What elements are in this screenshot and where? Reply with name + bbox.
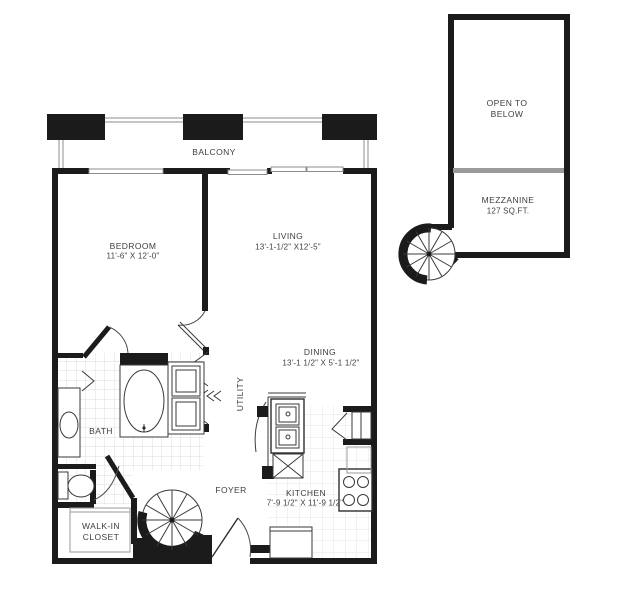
mezzanine-structure	[403, 14, 570, 280]
hall-door-arc	[178, 311, 205, 325]
stove	[339, 469, 372, 511]
mezzanine-label: MEZZANINE	[482, 195, 535, 205]
toilet	[68, 475, 94, 497]
bedroom-label: BEDROOM	[110, 241, 157, 251]
open-to-below-label: BELOW	[491, 109, 524, 119]
bedroom-angled-wall	[84, 327, 109, 357]
living-window	[271, 167, 306, 172]
bedroom-window	[89, 169, 163, 174]
tub-drain	[142, 426, 145, 429]
bath-label: BATH	[89, 426, 113, 436]
balcony-structure	[47, 114, 377, 170]
balcony-label: BALCONY	[192, 147, 235, 157]
utility-label: UTILITY	[235, 377, 245, 411]
open-to-below-label: OPEN TO	[487, 98, 528, 108]
mezzanine-divider	[453, 168, 564, 173]
balcony-column	[183, 114, 243, 140]
bedroom-dimensions: 11'-6" X 12'-0"	[107, 252, 160, 261]
bathtub	[124, 370, 164, 432]
base-cabinet	[270, 527, 312, 558]
living-window	[307, 167, 343, 172]
walk-in-closet-label: WALK-IN	[82, 521, 120, 531]
closet-foyer-wall	[131, 498, 137, 544]
foyer-label: FOYER	[215, 485, 246, 495]
floor-plan: BALCONY BEDROOM 11'-6" X 12'-0" LIVING 1…	[0, 0, 639, 596]
dining-label: DINING	[304, 347, 336, 357]
balcony-column	[322, 114, 377, 140]
bedroom-living-divider	[202, 174, 208, 311]
toilet-tank	[58, 472, 68, 499]
bedroom-door-arc	[109, 327, 128, 353]
entry-door-arc	[238, 518, 251, 557]
dining-dimensions: 13'-1 1/2" X 5'-1 1/2"	[282, 359, 359, 368]
entry-door	[212, 518, 238, 557]
mezzanine-area: 127 SQ.FT.	[487, 207, 529, 216]
living-label: LIVING	[273, 231, 303, 241]
living-dimensions: 13'-1-1/2" X12'-5"	[255, 243, 321, 252]
living-window	[228, 170, 267, 175]
balcony-column	[47, 114, 105, 140]
kitchen-label: KITCHEN	[286, 488, 326, 498]
vanity-sink	[60, 412, 78, 438]
entry-jamb	[250, 545, 272, 553]
walk-in-closet-label: CLOSET	[83, 532, 119, 542]
kitchen-dimensions: 7'-9 1/2" X 11'-9 1/2"	[267, 499, 344, 508]
vanity-faucet	[53, 418, 58, 427]
